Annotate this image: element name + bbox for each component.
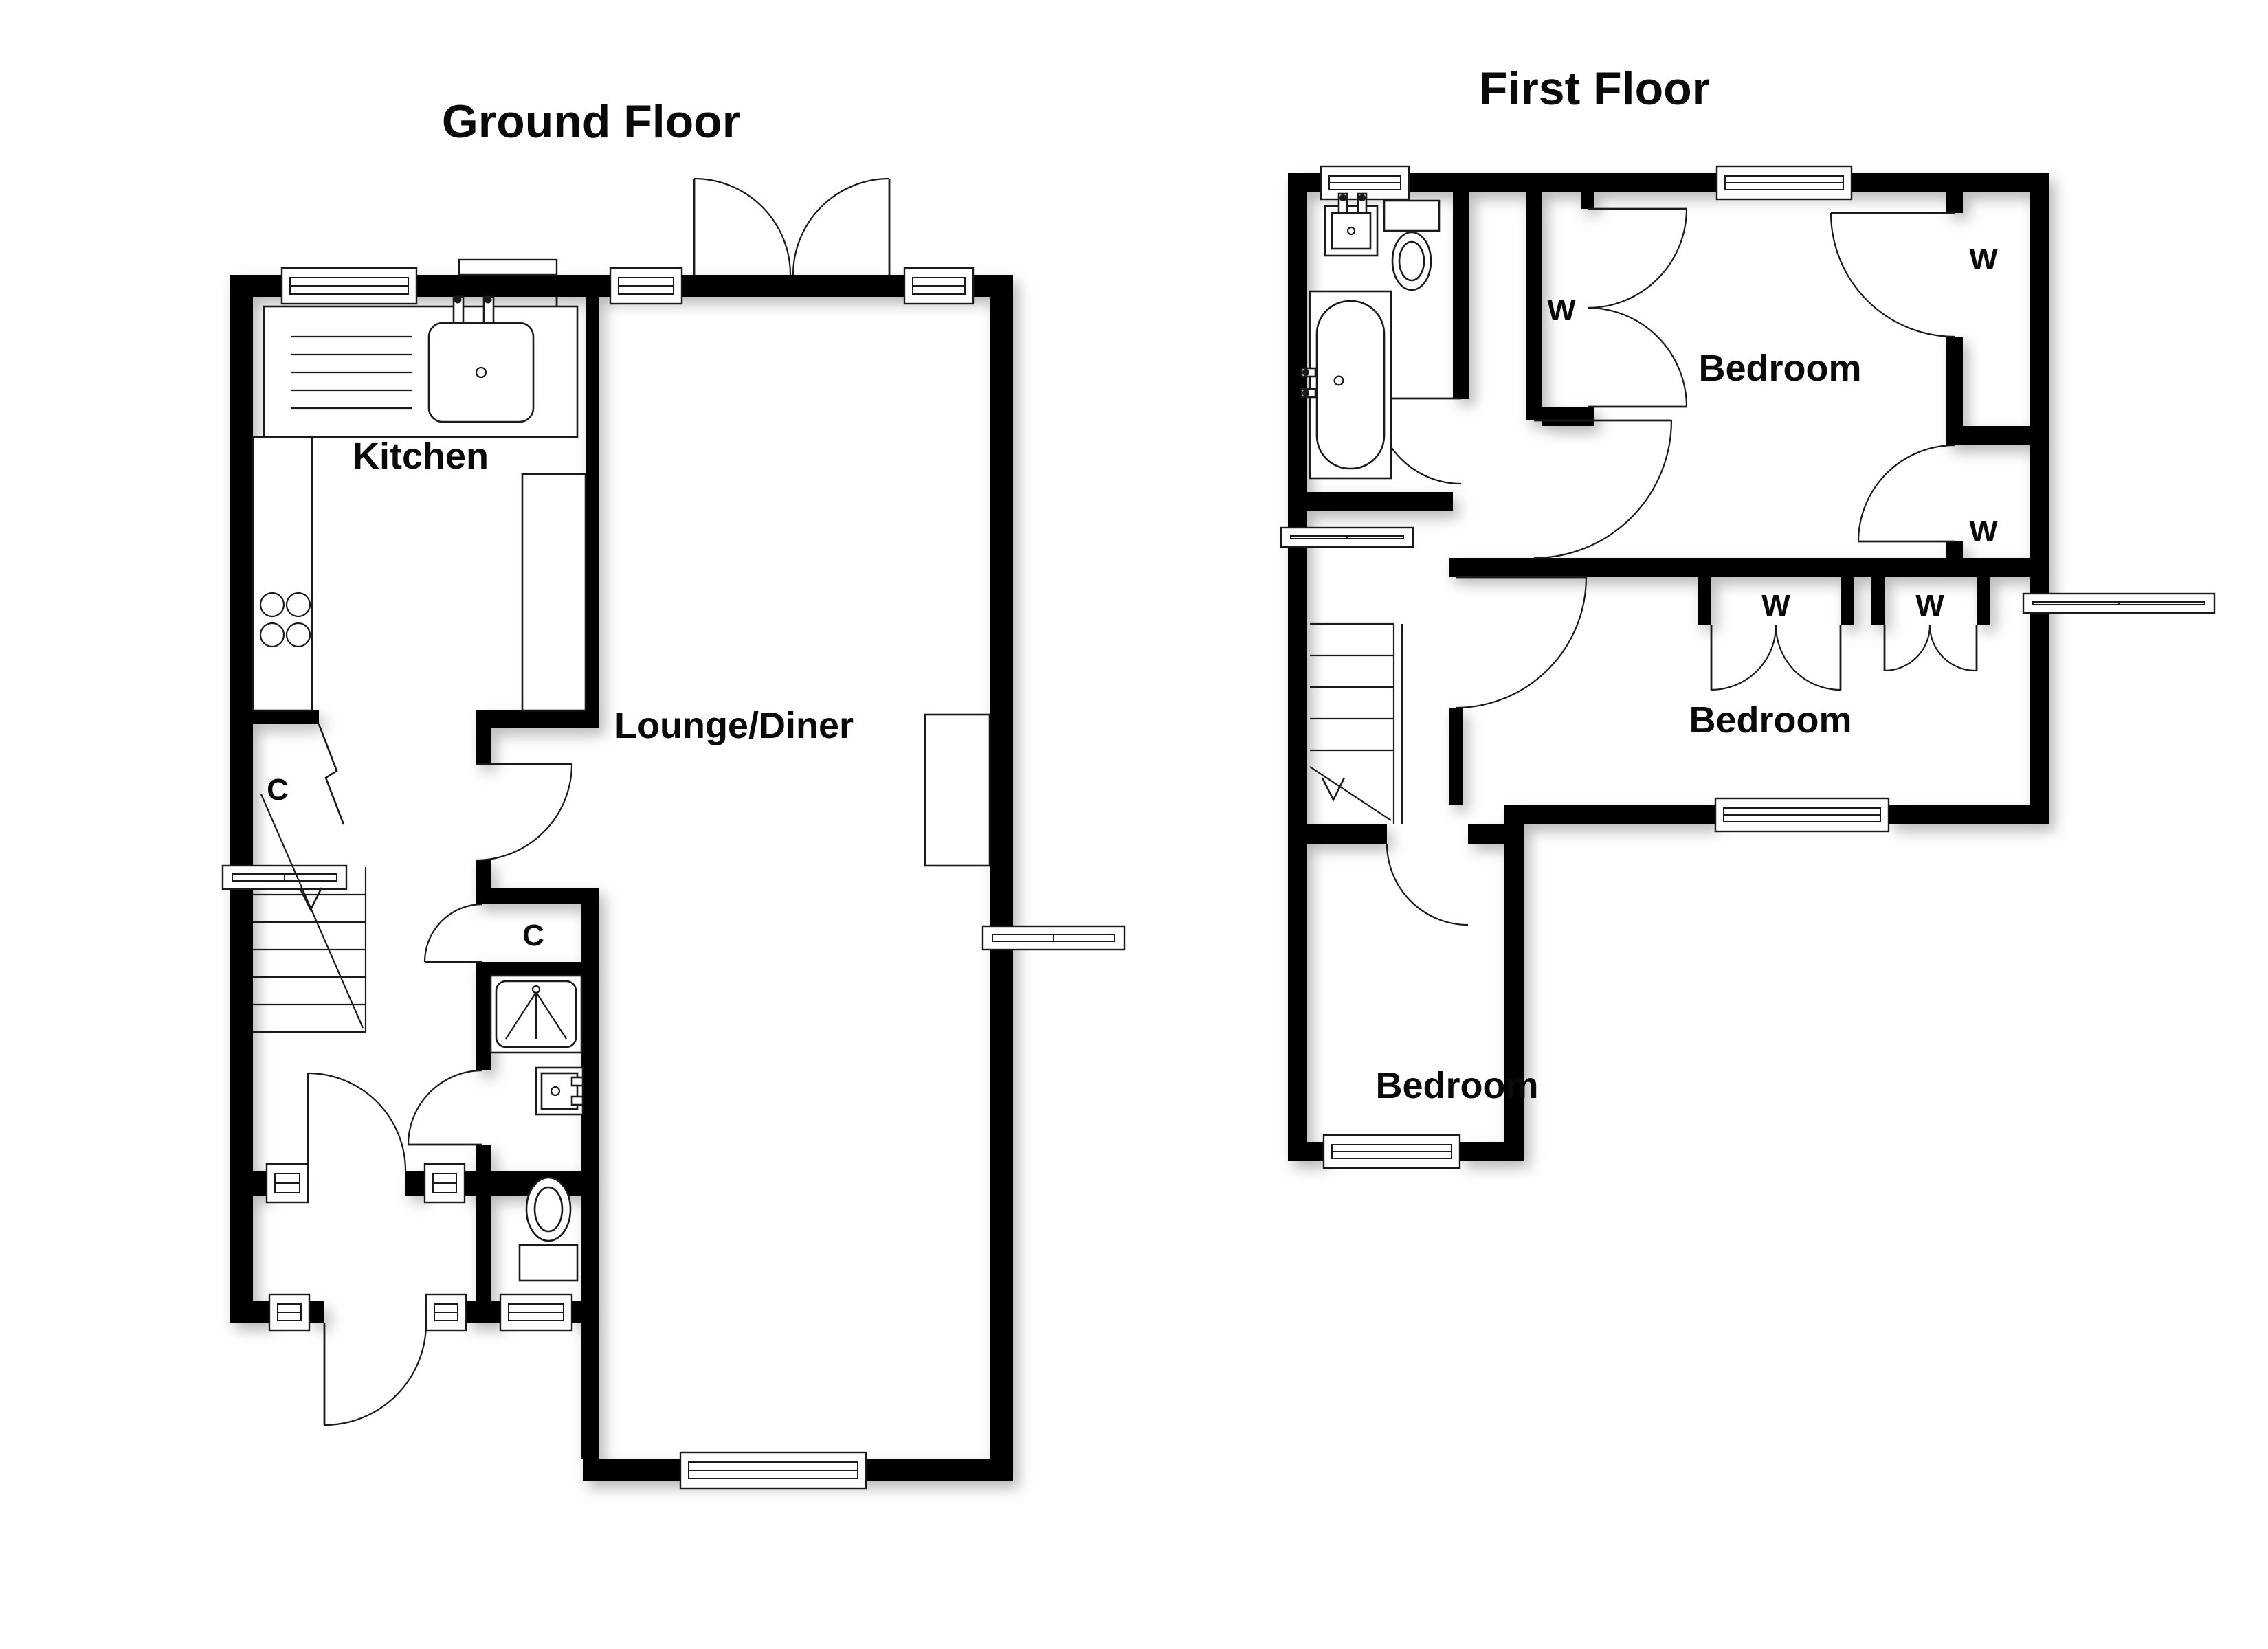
toilet-bowl-inner — [1399, 242, 1424, 280]
door-swing-arc — [1858, 445, 1955, 541]
fixture-detail-circle — [1340, 195, 1346, 201]
fixture-detail-circle — [287, 593, 310, 616]
wall — [990, 275, 1013, 1481]
ground-floor-title: Ground Floor — [442, 96, 740, 148]
wardrobe-door — [1831, 213, 1955, 337]
wall — [1871, 577, 1885, 625]
window — [2023, 594, 2214, 613]
window — [223, 866, 346, 889]
ground-floor: Ground FloorKitchenLounge/DinerCC — [223, 96, 1124, 1488]
lounge-door — [476, 764, 572, 860]
kitchen-tall-unit — [522, 474, 586, 710]
door-swing-arc — [1776, 625, 1841, 690]
french-door-left — [694, 179, 790, 275]
wall — [2030, 173, 2049, 824]
wall — [572, 1301, 597, 1323]
door-swing-arc — [1588, 209, 1687, 308]
wall — [1288, 173, 1307, 1161]
wardrobe-door — [1885, 625, 1930, 671]
wall — [1581, 173, 1594, 209]
fixture-detail-circle — [1303, 390, 1309, 396]
wall — [1449, 708, 1463, 805]
wc-door — [408, 1070, 482, 1145]
wardrobe-door — [1588, 209, 1687, 308]
chimney-breast — [925, 715, 990, 866]
cupboard-label: C — [522, 919, 544, 952]
kitchen-label: Kitchen — [353, 436, 489, 477]
wall — [309, 1301, 324, 1323]
wall — [1526, 173, 1542, 420]
wall — [1307, 492, 1453, 511]
lounge-diner-label: Lounge/Diner — [614, 705, 854, 746]
window — [983, 926, 1124, 950]
door-slab — [459, 260, 557, 275]
toilet-cistern — [1384, 201, 1439, 231]
wall — [491, 962, 581, 976]
door-swing-arc — [324, 1323, 426, 1425]
wall — [1946, 541, 1963, 558]
wall — [586, 297, 599, 710]
wall — [1288, 1142, 1324, 1161]
window — [1717, 166, 1852, 199]
door-swing-arc — [1711, 625, 1776, 690]
door-swing-arc — [476, 764, 572, 860]
door-swing-arc — [408, 1070, 482, 1145]
fixture-detail-circle — [476, 368, 486, 377]
bedroom-door — [1387, 844, 1468, 925]
fixture-detail-line — [1310, 767, 1391, 820]
window — [425, 1164, 465, 1202]
window — [267, 1164, 308, 1202]
tap — [572, 1077, 583, 1086]
wall — [1698, 577, 1711, 625]
door-swing-arc — [1387, 844, 1468, 925]
fixture-detail-circle — [1303, 370, 1309, 375]
floor-plan-page: Ground FloorKitchenLounge/DinerCCFirst F… — [0, 0, 2268, 1649]
wall — [1468, 824, 1504, 844]
fixture-detail-circle — [287, 623, 310, 647]
wall — [1542, 407, 1594, 426]
bedroom-door — [1456, 577, 1586, 708]
wall — [1288, 824, 1387, 844]
hall-door — [308, 1073, 405, 1171]
window — [269, 1294, 309, 1330]
door-swing-arc — [793, 179, 889, 275]
fixture-detail-circle — [1335, 377, 1344, 385]
fixture-detail-circle — [1348, 227, 1355, 234]
wall — [476, 710, 491, 764]
wardrobe-door — [1930, 625, 1977, 671]
fixture-detail-line — [261, 794, 363, 1028]
door-swing-arc — [1456, 577, 1586, 708]
wall — [476, 962, 491, 1070]
door-swing-arc — [1831, 213, 1955, 337]
fixture-detail-circle — [260, 593, 284, 616]
wardrobe-door — [1711, 625, 1776, 690]
cupboard-label: C — [267, 773, 289, 807]
french-door-right — [793, 179, 889, 275]
wall — [1841, 577, 1854, 625]
window — [1324, 1135, 1460, 1168]
cupboard-door — [425, 904, 482, 962]
window — [1715, 798, 1889, 831]
door-swing-arc — [1588, 308, 1687, 407]
wall — [476, 888, 598, 904]
bedroom-label: Bedroom — [1375, 1065, 1538, 1106]
wall — [1946, 192, 1963, 213]
fixture-detail-circle — [1359, 195, 1365, 201]
first-floor: First FloorBedroomBedroomBedroomWWWWW — [1281, 63, 2214, 1168]
wall — [230, 275, 253, 1323]
wardrobe-label: W — [1547, 293, 1576, 327]
door-swing-arc — [308, 1073, 405, 1171]
wall — [253, 1171, 267, 1196]
bedroom-label: Bedroom — [1689, 699, 1852, 741]
fixture-detail-circle — [533, 986, 540, 993]
wall — [1453, 173, 1469, 399]
wall — [1504, 805, 1715, 824]
door-swing-arc — [425, 904, 482, 962]
bedroom-label: Bedroom — [1698, 348, 1861, 389]
wall — [1504, 805, 1524, 1161]
wall — [477, 710, 599, 728]
wall — [1460, 1142, 1524, 1161]
door-swing-arc — [1885, 625, 1930, 671]
wall — [1977, 577, 1990, 625]
front-door — [324, 1323, 426, 1425]
window — [680, 1452, 866, 1488]
wall — [1449, 558, 2049, 577]
window — [904, 268, 973, 304]
wardrobe-door — [1776, 625, 1841, 690]
wall — [476, 860, 491, 888]
window — [282, 268, 416, 304]
wall — [253, 710, 319, 724]
stairs-arrow — [1322, 778, 1344, 800]
floor-plan-drawing: Ground FloorKitchenLounge/DinerCCFirst F… — [0, 0, 2268, 1649]
bifold-door — [319, 724, 344, 824]
door-swing-arc — [1930, 625, 1977, 671]
door-swing-arc — [1534, 420, 1671, 558]
wall — [230, 1301, 269, 1323]
kitchen-counter — [253, 437, 312, 710]
wardrobe-label: W — [1969, 243, 1998, 276]
wardrobe-door — [1858, 445, 1955, 541]
bath-tub — [1317, 301, 1384, 469]
wardrobe-label: W — [1969, 515, 1998, 548]
wall — [466, 1301, 500, 1323]
door-swing-arc — [694, 179, 790, 275]
fixture-detail-circle — [260, 623, 284, 647]
window — [500, 1294, 572, 1330]
toilet-cistern — [520, 1245, 577, 1281]
fixture-detail-circle — [455, 297, 461, 303]
toilet-bowl-inner — [535, 1187, 562, 1231]
first-floor-title: First Floor — [1479, 63, 1710, 115]
wall — [1946, 426, 2049, 445]
wardrobe-label: W — [1761, 589, 1790, 622]
wardrobe-door — [1588, 308, 1687, 407]
bedroom-door — [1534, 420, 1671, 558]
window — [610, 268, 682, 304]
wall — [405, 1171, 425, 1196]
wardrobe-label: W — [1915, 589, 1944, 622]
wall — [1889, 805, 2049, 824]
window — [1281, 528, 1413, 547]
wall — [1946, 337, 1963, 426]
window — [426, 1294, 466, 1330]
wall — [476, 1145, 491, 1301]
fixture-detail-circle — [485, 297, 491, 303]
tap — [572, 1097, 583, 1105]
fixture-detail-circle — [551, 1087, 559, 1095]
